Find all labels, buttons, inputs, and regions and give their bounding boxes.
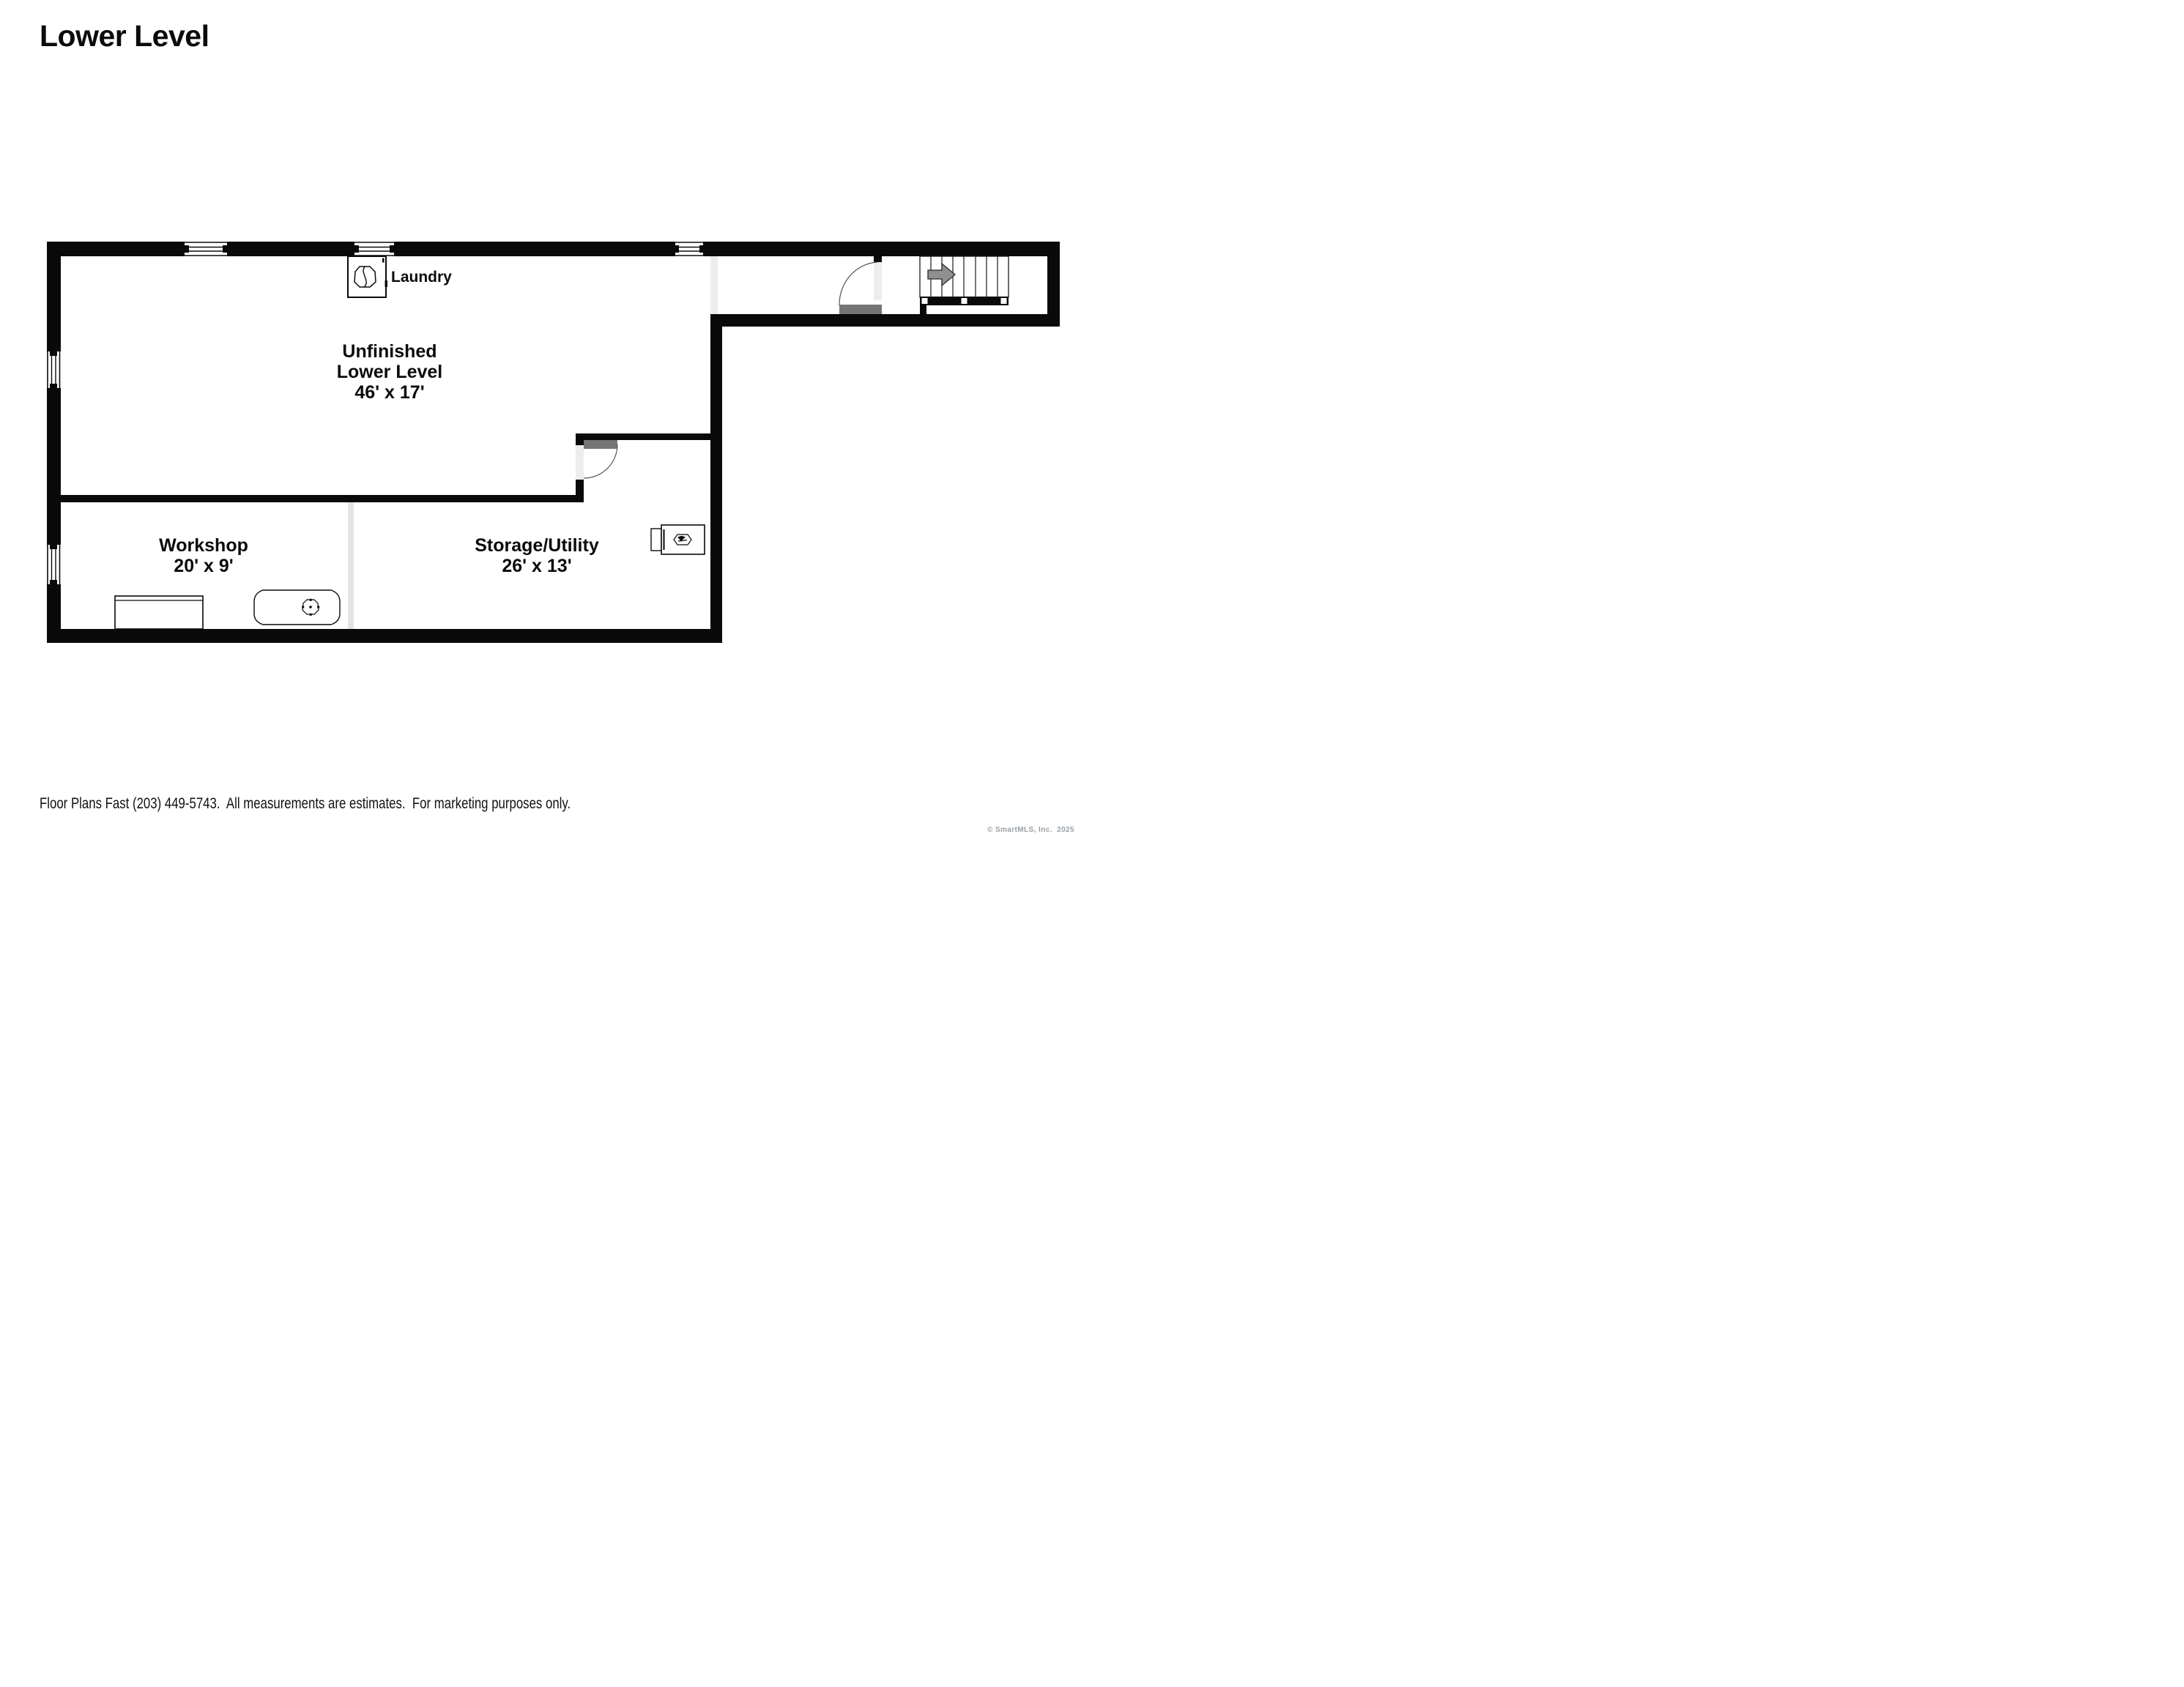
hall-door-jamb-top (874, 256, 882, 262)
floor-plan-page: Lower Level (0, 0, 1092, 843)
storage-door (584, 440, 617, 478)
wall-openings (576, 256, 882, 480)
main-room-dimensions: 46' x 17' (354, 382, 424, 403)
window-top-b (354, 242, 394, 256)
wall-outer-right (1047, 242, 1060, 327)
wall-middle-right-segment (576, 433, 710, 440)
handrail-post (922, 298, 928, 304)
partition-workshop-storage (348, 502, 354, 629)
hallway-door-swing-arc (839, 262, 877, 305)
walls (47, 242, 1060, 643)
storage-door-leaf (584, 440, 617, 449)
wall-hallway-bottom (710, 314, 1060, 327)
storage-name: Storage/Utility (475, 535, 599, 556)
storage-door-jamb-top (576, 438, 584, 445)
window-left-2 (47, 545, 61, 584)
laundry-label: Laundry (391, 269, 452, 286)
storage-door-swing-arc (584, 444, 617, 478)
hallway-door-leaf (839, 305, 882, 314)
wall-storage-right (710, 314, 722, 643)
wall-middle-left-segment (61, 495, 584, 502)
workbench (115, 596, 203, 629)
hall-doorway (874, 262, 882, 300)
workshop-name: Workshop (159, 535, 248, 556)
window-top-a (185, 242, 227, 256)
window-top-c (675, 242, 703, 256)
staircase (920, 256, 1009, 305)
window-left-1 (47, 351, 61, 388)
watermark: © SmartMLS, Inc. 2025 (987, 826, 1074, 834)
main-room-name-line1: Unfinished (342, 341, 437, 362)
furnace-icon (651, 525, 705, 554)
storage-door-jamb-bottom (576, 480, 584, 495)
main-room-name-line2: Lower Level (337, 362, 443, 382)
opening-main-to-hall (710, 256, 718, 314)
floor-plan-drawing: Laundry Unfinished Lower Level 46' x 17'… (0, 0, 1092, 843)
handrail-post (1001, 298, 1007, 304)
footer-disclaimer: Floor Plans Fast (203) 449-5743. All mea… (40, 795, 571, 813)
wall-bottom (47, 629, 722, 643)
storage-dimensions: 26' x 13' (502, 556, 571, 576)
utility-tub-icon (254, 590, 340, 625)
workshop-dimensions: 20' x 9' (174, 556, 233, 576)
washing-machine-icon (348, 256, 387, 297)
storage-doorway (576, 445, 584, 480)
handrail-post (962, 298, 967, 304)
